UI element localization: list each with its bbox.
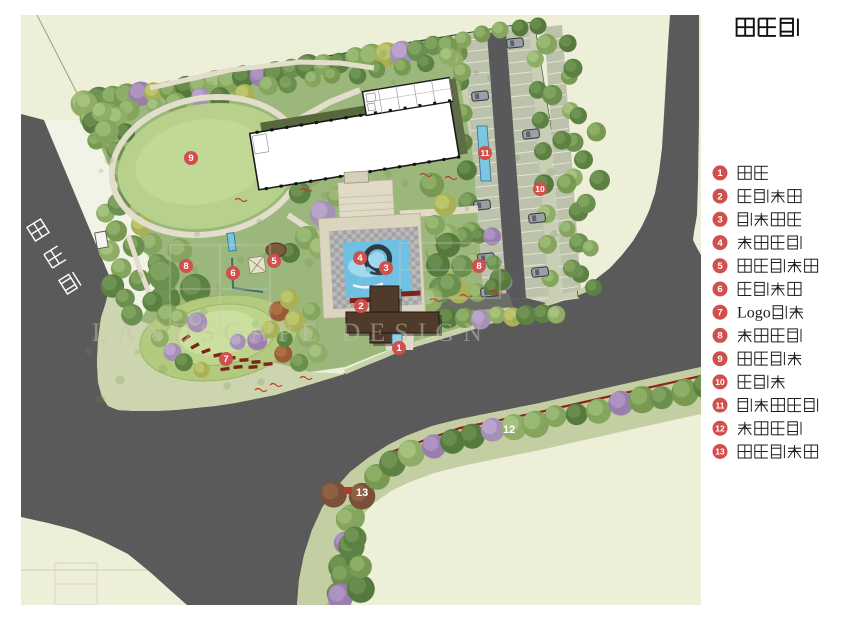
svg-text:10: 10 bbox=[535, 184, 545, 194]
svg-text:11: 11 bbox=[716, 400, 725, 410]
svg-text:9: 9 bbox=[188, 153, 193, 164]
svg-text:6: 6 bbox=[717, 284, 722, 295]
svg-text:8: 8 bbox=[183, 261, 188, 272]
svg-text:9: 9 bbox=[717, 354, 722, 365]
svg-text:3: 3 bbox=[383, 263, 388, 274]
svg-text:2: 2 bbox=[358, 301, 363, 312]
svg-text:11: 11 bbox=[481, 148, 490, 158]
svg-text:7: 7 bbox=[717, 307, 722, 318]
svg-text:13: 13 bbox=[715, 447, 725, 457]
svg-text:5: 5 bbox=[271, 256, 277, 267]
svg-text:4: 4 bbox=[717, 238, 723, 249]
svg-text:10: 10 bbox=[715, 377, 725, 387]
svg-text:13: 13 bbox=[356, 487, 368, 499]
svg-text:5: 5 bbox=[717, 261, 723, 272]
svg-text:LANDSCAPE DESIGN: LANDSCAPE DESIGN bbox=[92, 318, 491, 347]
svg-text:Logo: Logo bbox=[737, 305, 771, 322]
svg-text:7: 7 bbox=[223, 354, 228, 365]
svg-text:3: 3 bbox=[717, 215, 722, 226]
svg-text:8: 8 bbox=[476, 261, 481, 272]
svg-text:1: 1 bbox=[717, 168, 723, 179]
svg-text:8: 8 bbox=[717, 331, 722, 342]
svg-text:12: 12 bbox=[715, 424, 725, 434]
svg-text:4: 4 bbox=[357, 253, 363, 264]
svg-text:12: 12 bbox=[503, 424, 515, 436]
svg-text:1: 1 bbox=[396, 343, 402, 354]
svg-text:2: 2 bbox=[717, 191, 722, 202]
svg-text:6: 6 bbox=[230, 268, 235, 279]
